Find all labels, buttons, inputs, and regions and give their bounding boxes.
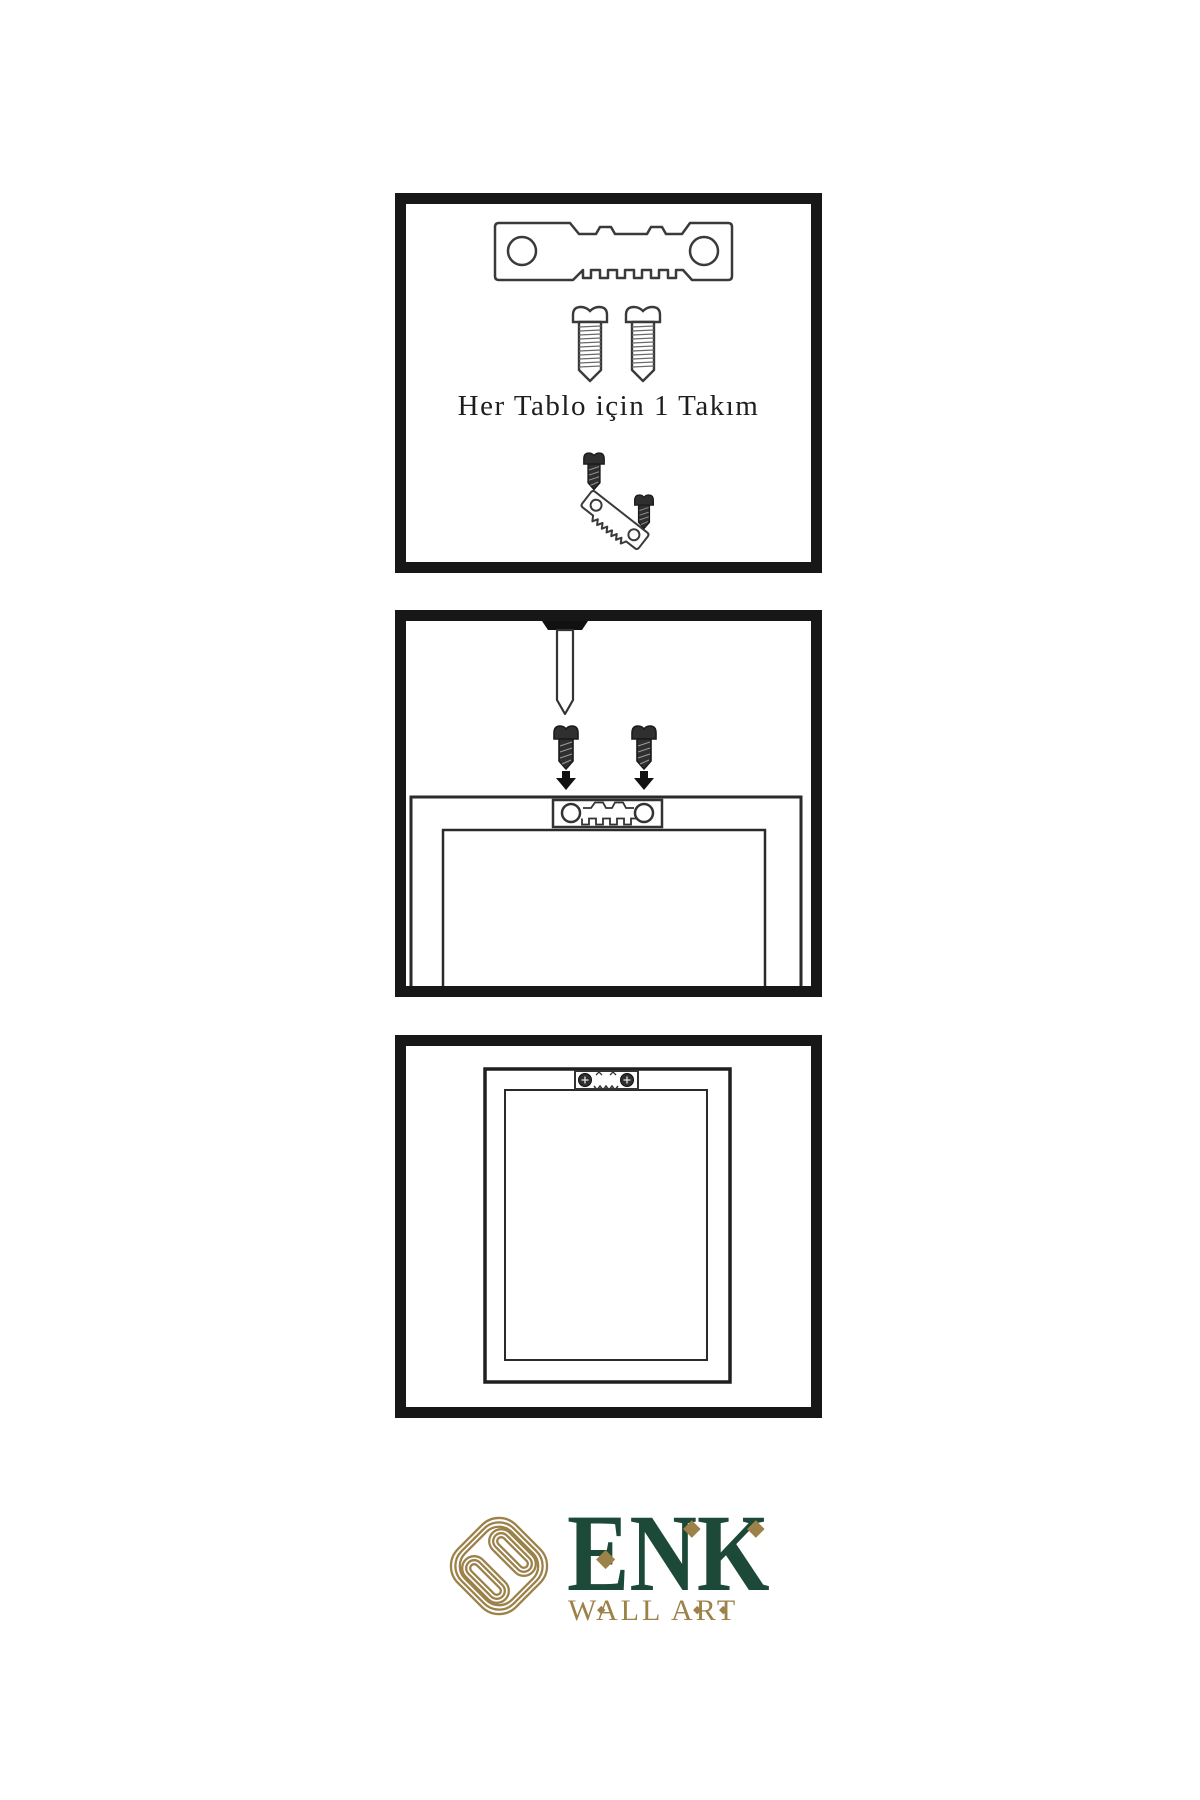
diamond-accent-icon: ◆ xyxy=(596,1545,615,1570)
mounted-sawtooth-hanger-icon xyxy=(575,1071,638,1090)
sawtooth-hanger-icon xyxy=(553,800,662,827)
hang-frame-illustration xyxy=(406,1046,811,1407)
screw-into-hanger-icon xyxy=(577,453,653,554)
panel-hang-frame xyxy=(395,1035,822,1418)
diamond-dot-icon: ◆ xyxy=(597,1604,605,1615)
panel-hardware-kit: Her Tablo için 1 Takım xyxy=(395,193,822,573)
diamond-dot-icon: ◆ xyxy=(693,1604,701,1615)
screw-icon xyxy=(632,726,656,769)
panel-attach-hanger xyxy=(395,610,822,997)
sawtooth-hanger-icon xyxy=(495,223,732,280)
brand-logo: ENK ◆ ◆ ◆ WALL ART ◆ ◆ ◆ xyxy=(437,1495,782,1645)
screw-icon xyxy=(554,726,578,769)
diamond-accent-icon: ◆ xyxy=(683,1517,701,1540)
diamond-accent-icon: ◆ xyxy=(747,1517,765,1540)
attach-hanger-illustration xyxy=(406,621,811,986)
hardware-kit-illustration xyxy=(406,204,811,562)
frame-back-icon xyxy=(485,1069,730,1382)
kit-caption: Her Tablo için 1 Takım xyxy=(406,390,811,423)
instruction-sheet: Her Tablo için 1 Takım xyxy=(0,0,1200,1800)
screw-icon xyxy=(573,307,607,381)
diamond-dot-icon: ◆ xyxy=(719,1604,727,1615)
knot-logo-icon xyxy=(437,1495,562,1638)
screw-icon xyxy=(626,307,660,381)
arrow-down-icon xyxy=(556,771,576,790)
arrow-down-icon xyxy=(634,771,654,790)
nail-icon xyxy=(542,621,588,714)
brand-tagline: WALL ART xyxy=(568,1594,738,1628)
